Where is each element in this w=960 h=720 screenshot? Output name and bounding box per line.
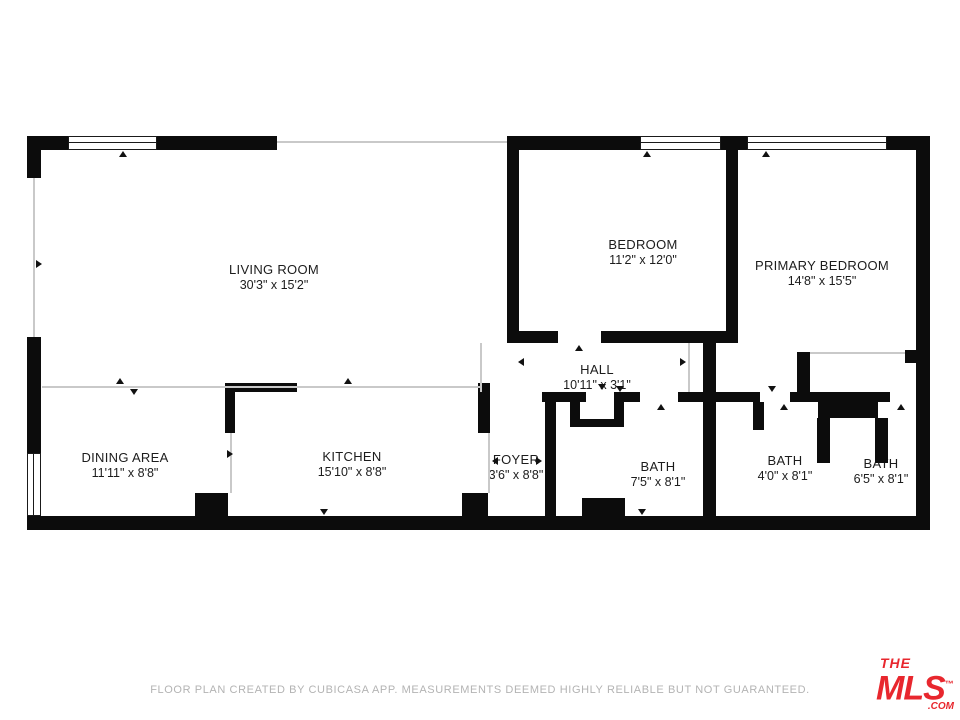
door-opening-marker bbox=[762, 151, 770, 157]
wall-segment bbox=[716, 392, 760, 402]
room-dimensions: 15'10" x 8'8" bbox=[318, 465, 387, 480]
door-opening-marker bbox=[320, 509, 328, 515]
door-opening-marker bbox=[768, 386, 776, 392]
room-name: PRIMARY BEDROOM bbox=[755, 258, 889, 274]
room-name: LIVING ROOM bbox=[229, 262, 319, 278]
wall-segment bbox=[570, 419, 624, 427]
door-opening-marker bbox=[536, 457, 542, 465]
door-opening-marker bbox=[119, 151, 127, 157]
open-boundary-line bbox=[688, 343, 690, 392]
door-opening-marker bbox=[643, 151, 651, 157]
door-opening-marker bbox=[616, 386, 624, 392]
door-opening-marker bbox=[492, 457, 498, 465]
wall-segment bbox=[27, 337, 41, 453]
door-opening-marker bbox=[116, 378, 124, 384]
door-opening-marker bbox=[575, 345, 583, 351]
door-opening-marker bbox=[897, 404, 905, 410]
window bbox=[640, 136, 721, 150]
open-boundary-line bbox=[277, 141, 507, 143]
door-opening-marker bbox=[657, 404, 665, 410]
wall-segment bbox=[462, 493, 488, 516]
wall-segment bbox=[916, 136, 930, 530]
themls-logo: THE MLS™ .COM bbox=[876, 656, 956, 712]
wall-segment bbox=[195, 493, 228, 516]
wall-segment bbox=[817, 418, 830, 463]
room-dimensions: 7'5" x 8'1" bbox=[631, 475, 686, 490]
room-dimensions: 11'11" x 8'8" bbox=[81, 466, 168, 481]
wall-segment bbox=[878, 392, 890, 402]
room-name: BATH bbox=[631, 459, 686, 475]
page-background: { "title": "Floor Plan", "rooms": [ {"na… bbox=[0, 0, 960, 720]
door-opening-marker bbox=[36, 260, 42, 268]
open-boundary-line bbox=[480, 343, 482, 392]
room-label-kitchen: KITCHEN 15'10" x 8'8" bbox=[318, 449, 387, 480]
wall-segment bbox=[753, 402, 764, 430]
window bbox=[747, 136, 887, 150]
room-name: DINING AREA bbox=[81, 450, 168, 466]
room-label-living-room: LIVING ROOM 30'3" x 15'2" bbox=[229, 262, 319, 293]
open-boundary-line bbox=[42, 386, 480, 388]
window bbox=[68, 136, 157, 150]
room-dimensions: 11'2" x 12'0" bbox=[608, 253, 677, 268]
room-dimensions: 6'5" x 8'1" bbox=[854, 472, 909, 487]
room-name: BATH bbox=[758, 453, 813, 469]
room-dimensions: 30'3" x 15'2" bbox=[229, 278, 319, 293]
window bbox=[27, 453, 41, 516]
room-label-bath-2: BATH 4'0" x 8'1" bbox=[758, 453, 813, 484]
wall-segment bbox=[905, 350, 916, 363]
door-opening-marker bbox=[680, 358, 686, 366]
door-opening-marker bbox=[130, 389, 138, 395]
wall-segment bbox=[225, 383, 235, 433]
open-boundary-line bbox=[810, 352, 905, 354]
room-name: HALL bbox=[563, 362, 631, 378]
wall-segment bbox=[601, 331, 738, 343]
logo-word-mls: MLS™ bbox=[876, 670, 956, 702]
room-label-primary-bedroom: PRIMARY BEDROOM 14'8" x 15'5" bbox=[755, 258, 889, 289]
wall-segment bbox=[703, 343, 716, 516]
wall-segment bbox=[507, 150, 519, 343]
wall-segment bbox=[27, 136, 41, 178]
room-label-bath-1: BATH 7'5" x 8'1" bbox=[631, 459, 686, 490]
trademark-symbol: ™ bbox=[945, 679, 953, 689]
door-opening-marker bbox=[780, 404, 788, 410]
door-opening-marker bbox=[598, 384, 606, 390]
room-name: KITCHEN bbox=[318, 449, 387, 465]
wall-segment bbox=[797, 352, 810, 393]
wall-segment bbox=[545, 392, 556, 516]
open-boundary-line bbox=[488, 433, 490, 493]
wall-segment bbox=[790, 392, 818, 402]
room-label-dining-area: DINING AREA 11'11" x 8'8" bbox=[81, 450, 168, 481]
room-dimensions: 4'0" x 8'1" bbox=[758, 469, 813, 484]
wall-segment bbox=[27, 516, 930, 530]
open-boundary-line bbox=[230, 433, 232, 493]
wall-segment bbox=[726, 150, 738, 343]
floor-plan: LIVING ROOM 30'3" x 15'2" BEDROOM 11'2" … bbox=[0, 0, 960, 720]
door-opening-marker bbox=[638, 509, 646, 515]
wall-segment bbox=[875, 418, 888, 463]
room-dimensions: 3'6" x 8'8" bbox=[489, 468, 544, 483]
room-name: BEDROOM bbox=[608, 237, 677, 253]
door-opening-marker bbox=[518, 358, 524, 366]
door-opening-marker bbox=[227, 450, 233, 458]
wall-segment bbox=[624, 392, 640, 402]
disclaimer-text: FLOOR PLAN CREATED BY CUBICASA APP. MEAS… bbox=[150, 684, 810, 696]
logo-word-the: THE bbox=[880, 656, 956, 670]
open-boundary-line bbox=[33, 178, 35, 337]
wall-segment bbox=[818, 392, 878, 418]
room-label-bedroom: BEDROOM 11'2" x 12'0" bbox=[608, 237, 677, 268]
room-dimensions: 14'8" x 15'5" bbox=[755, 274, 889, 289]
wall-segment bbox=[507, 331, 558, 343]
door-opening-marker bbox=[344, 378, 352, 384]
wall-segment bbox=[582, 498, 625, 516]
